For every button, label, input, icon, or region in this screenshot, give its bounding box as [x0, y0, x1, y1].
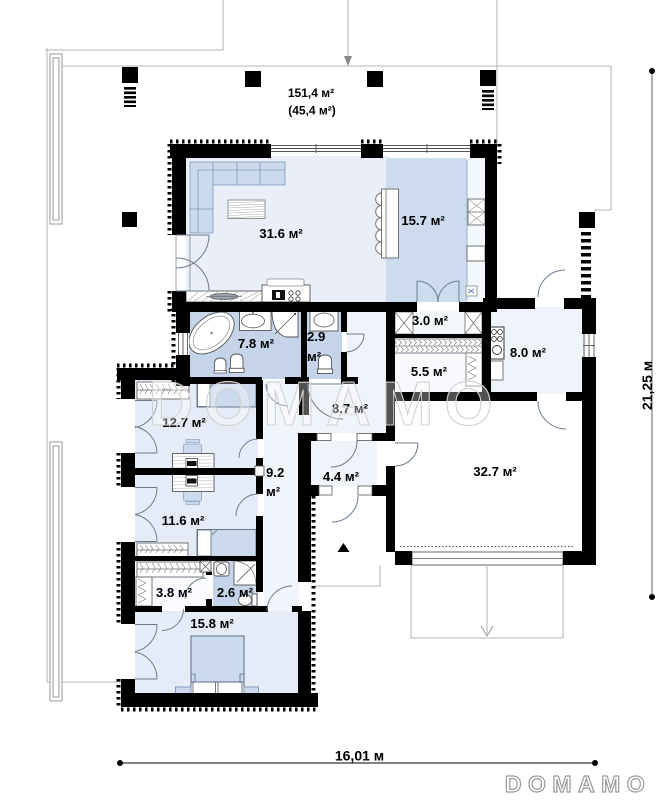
svg-text:15.8 м²: 15.8 м²	[190, 616, 234, 631]
svg-text:7.8 м²: 7.8 м²	[238, 336, 275, 351]
svg-text:DOMAMO: DOMAMO	[148, 370, 503, 439]
svg-text:2.9: 2.9	[307, 329, 325, 344]
svg-text:15.7 м²: 15.7 м²	[401, 213, 445, 228]
svg-text:8.0 м²: 8.0 м²	[510, 345, 547, 360]
svg-text:м²: м²	[307, 349, 322, 364]
svg-text:9.2: 9.2	[266, 465, 284, 480]
svg-text:(45,4 м²): (45,4 м²)	[288, 104, 336, 118]
svg-text:31.6 м²: 31.6 м²	[259, 226, 303, 241]
svg-text:32.7 м²: 32.7 м²	[473, 464, 517, 479]
svg-text:3.0 м²: 3.0 м²	[412, 313, 449, 328]
svg-text:151,4 м²: 151,4 м²	[288, 86, 334, 100]
svg-text:21,25 м: 21,25 м	[639, 361, 655, 410]
svg-text:м²: м²	[266, 484, 281, 499]
svg-text:2.6 м²: 2.6 м²	[217, 585, 254, 600]
svg-text:16,01 м: 16,01 м	[335, 748, 384, 764]
svg-text:3.8 м²: 3.8 м²	[156, 585, 193, 600]
svg-text:DOMAMO: DOMAMO	[505, 771, 651, 797]
svg-text:11.6 м²: 11.6 м²	[162, 513, 205, 528]
svg-text:4.4 м²: 4.4 м²	[323, 469, 360, 484]
